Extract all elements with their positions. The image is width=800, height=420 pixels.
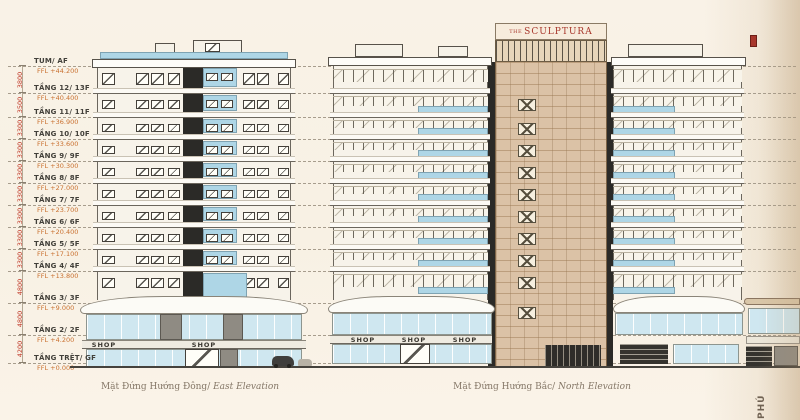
window <box>136 124 149 132</box>
window <box>206 212 218 220</box>
shop-sign: SHOP <box>84 341 124 349</box>
window <box>102 146 115 154</box>
floor-slab <box>611 222 744 228</box>
window <box>168 100 180 109</box>
window <box>257 100 269 109</box>
core-x-window <box>518 189 536 201</box>
floor-slab <box>93 266 295 272</box>
floor-slab <box>330 134 490 140</box>
window <box>136 190 149 198</box>
dark-storefront <box>620 344 668 364</box>
dimension-label: 3300 <box>14 117 26 139</box>
floor-slab <box>330 88 490 94</box>
level-label: TẦNG 5/ 5F <box>34 240 80 248</box>
core-x-window <box>518 255 536 267</box>
window <box>243 190 255 198</box>
window <box>206 73 218 81</box>
window-band <box>333 252 488 260</box>
dimension-label: 3300 <box>14 139 26 161</box>
level-label: TẦNG 10/ 10F <box>34 130 90 138</box>
floor-slab <box>93 112 295 118</box>
window <box>278 73 289 85</box>
level-label: TUM/ AF <box>34 57 68 65</box>
window <box>221 256 233 264</box>
level-label: TẦNG 2/ 2F <box>34 326 80 334</box>
floor-slab <box>611 88 744 94</box>
window <box>151 146 164 154</box>
window <box>102 234 115 242</box>
window <box>168 124 180 132</box>
east-caption-vietnamese: Mặt Đứng Hướng Đông/ <box>101 382 210 392</box>
window-band <box>613 208 742 216</box>
window <box>257 278 269 288</box>
level-label: TẦNG 7/ 7F <box>34 196 80 204</box>
rooftop-box <box>628 44 703 57</box>
podium-gray-panel <box>223 314 243 340</box>
level-label: TẦNG 9/ 9F <box>34 152 80 160</box>
glass-band <box>613 287 675 294</box>
window <box>278 212 289 220</box>
level-tick <box>19 302 26 303</box>
level-ffl: FFL +30.300 <box>37 162 78 170</box>
level-ffl: FFL +27.000 <box>37 184 78 192</box>
window <box>243 234 255 242</box>
level-ffl: FFL +23.700 <box>37 206 78 214</box>
level-ffl: FFL +36.900 <box>37 118 78 126</box>
level-label: TẦNG 4/ 4F <box>34 262 80 270</box>
window-band <box>613 252 742 260</box>
window <box>221 234 233 242</box>
east-caption-english: East Elevation <box>210 382 279 392</box>
window <box>257 256 269 264</box>
window <box>136 234 149 242</box>
dimension-label: 3300 <box>14 183 26 205</box>
window <box>168 168 180 176</box>
elevation-drawing-sheet: TUM/ AFFFL +44.200TẦNG 12/ 13FFFL +40.40… <box>0 0 800 420</box>
window <box>278 278 289 288</box>
window <box>168 234 180 242</box>
window <box>168 278 180 288</box>
level-tick <box>19 92 26 93</box>
floor-slab <box>93 200 295 206</box>
window <box>221 100 233 108</box>
pavilion-band <box>746 336 800 344</box>
core-x-window <box>518 277 536 289</box>
window <box>168 190 180 198</box>
level-label: TẦNG 12/ 13F <box>34 84 90 92</box>
podium-upper-glass <box>86 314 302 340</box>
rooftop-box <box>438 46 468 57</box>
window <box>257 146 269 154</box>
podium-canopy <box>328 296 495 313</box>
window-band <box>613 164 742 172</box>
window-band <box>333 208 488 216</box>
small-car-icon <box>298 359 312 366</box>
shop-sign: SHOP <box>184 341 224 349</box>
pavilion-glass <box>748 308 800 334</box>
floor-slab <box>93 134 295 140</box>
floor-slab <box>611 156 744 162</box>
level-label: TẦNG 11/ 11F <box>34 108 90 116</box>
dimension-label: 4800 <box>14 308 26 330</box>
window <box>278 256 289 264</box>
window <box>136 168 149 176</box>
floor-slab <box>330 156 490 162</box>
core-x-window <box>518 167 536 179</box>
window <box>243 256 255 264</box>
floor-slab <box>93 88 295 94</box>
window <box>102 256 115 264</box>
window <box>243 146 255 154</box>
window <box>168 256 180 264</box>
window <box>278 190 289 198</box>
window <box>221 124 233 132</box>
dimension-label: 4200 <box>14 338 26 360</box>
window-band <box>613 274 742 287</box>
pavilion-panel <box>774 346 798 366</box>
window-band <box>333 230 488 238</box>
core-x-window <box>518 145 536 157</box>
podium-canopy <box>80 296 308 314</box>
window <box>221 190 233 198</box>
window <box>151 212 164 220</box>
window <box>278 124 289 132</box>
rooftop-window <box>205 43 220 52</box>
window <box>136 278 149 288</box>
dimension-label: 3300 <box>14 249 26 271</box>
level-ffl: FFL +13.800 <box>37 272 78 280</box>
north-caption-english: North Elevation <box>555 382 631 392</box>
dimension-label: 3500 <box>14 94 26 116</box>
window <box>151 256 164 264</box>
window <box>206 146 218 154</box>
window <box>206 190 218 198</box>
window <box>168 212 180 220</box>
dimension-label: 3300 <box>14 205 26 227</box>
level-ffl: FFL +17.100 <box>37 250 78 258</box>
window <box>243 100 255 109</box>
floor-slab <box>93 156 295 162</box>
podium-gray-panel <box>160 314 182 340</box>
level-label: TẦNG TRỆT/ GF <box>34 354 96 362</box>
level-tick <box>19 334 26 335</box>
window <box>136 212 149 220</box>
podium-upper-glass <box>332 313 492 335</box>
window <box>221 146 233 154</box>
window-band <box>613 186 742 194</box>
window-band <box>613 96 742 106</box>
level-ffl: FFL +0.000 <box>37 364 74 372</box>
pavilion-base <box>746 346 772 366</box>
level-ffl: FFL +20.400 <box>37 228 78 236</box>
level-label: TẦNG 3/ 3F <box>34 294 80 302</box>
window-band <box>613 142 742 150</box>
window <box>243 73 255 85</box>
window-band <box>333 186 488 194</box>
window <box>243 168 255 176</box>
window-band <box>613 120 742 128</box>
window <box>151 100 164 109</box>
window <box>151 168 164 176</box>
window <box>221 168 233 176</box>
window-band <box>333 142 488 150</box>
window-band <box>333 164 488 172</box>
window-band <box>613 230 742 238</box>
parapet-slab <box>328 57 492 66</box>
dimension-label: 3300 <box>14 227 26 249</box>
level-ffl: FFL +44.200 <box>37 67 78 75</box>
window <box>206 256 218 264</box>
street-label: PHÚ <box>757 391 771 419</box>
window <box>206 234 218 242</box>
window-band <box>333 274 488 287</box>
window <box>168 73 180 85</box>
level-ffl: FFL +9.000 <box>37 304 74 312</box>
window <box>257 234 269 242</box>
glass-band <box>418 287 488 294</box>
floor-slab <box>330 178 490 184</box>
floor-slab <box>330 266 490 272</box>
floor-slab <box>611 178 744 184</box>
floor-slab <box>611 112 744 118</box>
level-label: TẦNG 8/ 8F <box>34 174 80 182</box>
floor-slab <box>330 244 490 250</box>
window <box>102 124 115 132</box>
floor-slab <box>611 134 744 140</box>
core-base-grille <box>545 345 601 368</box>
north-elevation-building: THESCULPTURASHOPSHOPSHOP <box>328 20 746 368</box>
window <box>278 100 289 109</box>
roof-glass-band <box>100 52 288 59</box>
parapet-slab <box>611 57 746 66</box>
dimension-label: 3800 <box>14 69 26 91</box>
window-band <box>613 69 742 82</box>
window <box>257 124 269 132</box>
ground-line <box>70 366 800 368</box>
window <box>102 168 115 176</box>
storefront-glass <box>673 344 739 364</box>
floor-slab <box>93 244 295 250</box>
window <box>243 212 255 220</box>
core-x-window <box>518 123 536 135</box>
level-tick <box>19 65 26 66</box>
window <box>136 146 149 154</box>
window <box>257 168 269 176</box>
level-tick <box>19 362 26 363</box>
project-title-sign: THESCULPTURA <box>495 23 607 40</box>
window <box>151 190 164 198</box>
window <box>278 234 289 242</box>
dimension-label: 3300 <box>14 161 26 183</box>
shop-sign: SHOP <box>394 336 434 344</box>
floor-slab <box>330 112 490 118</box>
window <box>257 190 269 198</box>
entrance-door <box>400 344 430 364</box>
window <box>206 124 218 132</box>
window <box>151 73 164 85</box>
window <box>136 256 149 264</box>
floor-slab <box>93 178 295 184</box>
north-elevation-caption: Mặt Đứng Hướng Bắc/ North Elevation <box>424 382 660 392</box>
window <box>136 100 149 109</box>
level-label: TẦNG 6/ 6F <box>34 218 80 226</box>
level-ffl: FFL +4.200 <box>37 336 74 344</box>
pavilion-canopy <box>744 298 800 305</box>
floor-slab <box>611 200 744 206</box>
car-icon <box>272 356 294 366</box>
window-band <box>333 96 488 106</box>
core-x-window <box>518 211 536 223</box>
window <box>221 73 233 81</box>
window <box>102 190 115 198</box>
floor-slab <box>330 200 490 206</box>
east-elevation-caption: Mặt Đứng Hướng Đông/ East Elevation <box>78 382 302 392</box>
core-x-window <box>518 307 536 319</box>
floor-slab <box>611 244 744 250</box>
podium-canopy <box>613 296 745 313</box>
podium-upper-glass <box>615 313 743 335</box>
window <box>257 73 269 85</box>
shop-sign: SHOP <box>343 336 383 344</box>
window <box>168 146 180 154</box>
window <box>151 124 164 132</box>
terrace-glass-box <box>203 273 247 298</box>
title-name: SCULPTURA <box>524 27 593 37</box>
floor-slab <box>330 222 490 228</box>
title-the: THE <box>509 29 522 35</box>
window <box>278 146 289 154</box>
window <box>151 234 164 242</box>
core-x-window <box>518 233 536 245</box>
window <box>243 124 255 132</box>
window <box>136 73 149 85</box>
window <box>102 212 115 220</box>
floor-slab <box>93 222 295 228</box>
window <box>102 73 115 85</box>
core-crown-stripes <box>495 40 607 62</box>
window <box>221 212 233 220</box>
parapet-slab <box>92 59 296 68</box>
neighbor-structure <box>744 296 800 368</box>
window <box>206 100 218 108</box>
window <box>257 212 269 220</box>
dimension-label: 4800 <box>14 276 26 298</box>
level-ffl: FFL +33.600 <box>37 140 78 148</box>
core-x-window <box>518 99 536 111</box>
level-ffl: FFL +40.400 <box>37 94 78 102</box>
window <box>206 168 218 176</box>
window <box>102 278 115 288</box>
central-core <box>495 62 607 368</box>
window-band <box>333 120 488 128</box>
window-band <box>333 69 488 82</box>
window <box>102 100 115 109</box>
roof-red-sign <box>750 35 757 47</box>
north-caption-vietnamese: Mặt Đứng Hướng Bắc/ <box>453 382 555 392</box>
rooftop-box <box>355 44 403 57</box>
shop-sign: SHOP <box>445 336 485 344</box>
east-elevation-building: SHOPSHOP <box>80 33 310 368</box>
floor-slab <box>611 266 744 272</box>
window <box>151 278 164 288</box>
window <box>278 168 289 176</box>
